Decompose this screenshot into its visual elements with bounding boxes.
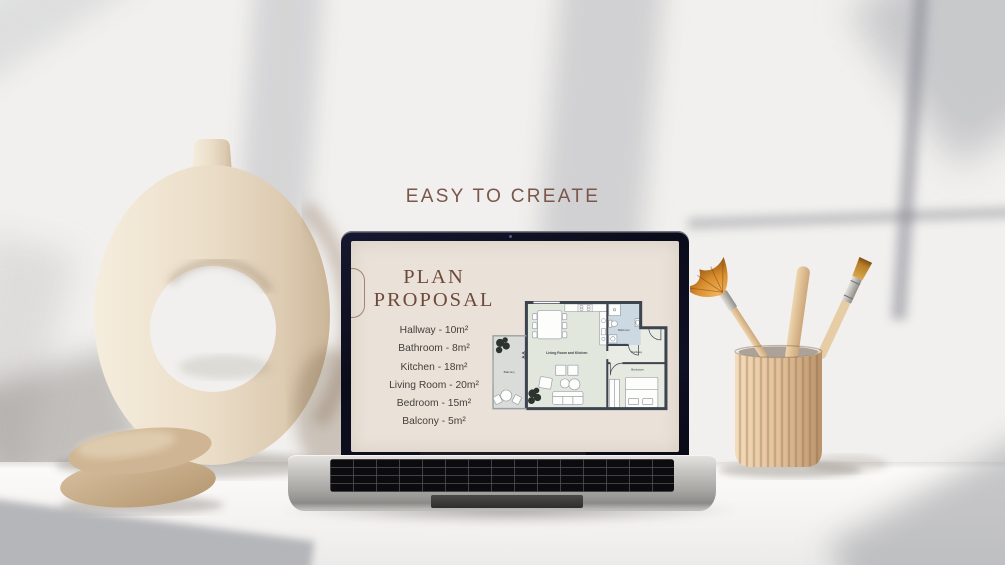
floor-plan: Living Room and Kitchen Hallway Bedroom … [489,288,671,412]
headline-text: EASY TO CREATE [393,186,613,208]
wooden-stick [784,266,810,363]
flat-brush-ferrule [842,276,862,304]
brush-cup-group [690,248,900,483]
laptop-screen-slide: PLAN PROPOSAL Hallway - 10m² Bathroom - … [351,241,679,452]
label-balcony: Balcony [504,370,516,374]
laptop-base [288,455,716,511]
room-line-kitchen: Kitchen - 18m² [357,359,511,377]
wall-light-stripe [0,0,197,93]
room-line-bedroom: Bedroom - 15m² [357,395,511,413]
room-line-bathroom: Bathroom - 8m² [357,340,511,358]
vase-hole-inner-shadow [179,355,271,379]
label-hallway: Hallway [631,350,642,354]
room-area-list: Hallway - 10m² Bathroom - 8m² Kitchen - … [357,322,511,432]
corner-shadow [849,0,1005,167]
laptop-trackpad [431,495,583,508]
room-line-balcony: Balcony - 5m² [357,413,511,431]
window-frame-shadow [688,207,1005,229]
webcam-dot [509,235,512,238]
slide-title: PLAN PROPOSAL [357,266,511,312]
laptop-screen-bezel: PLAN PROPOSAL Hallway - 10m² Bathroom - … [341,231,689,459]
bedroom-furniture [609,377,658,407]
flat-brush [814,257,872,361]
dining-table [532,311,566,339]
mockup-scene: EASY TO CREATE [0,0,1005,565]
label-bedroom: Bedroom [631,368,644,372]
label-living: Living Room and Kitchen [546,351,587,355]
room-line-hallway: Hallway - 10m² [357,322,511,340]
label-bathroom: Bathroom [618,328,631,332]
room-line-livingroom: Living Room - 20m² [357,377,511,395]
laptop-keyboard [330,459,674,492]
